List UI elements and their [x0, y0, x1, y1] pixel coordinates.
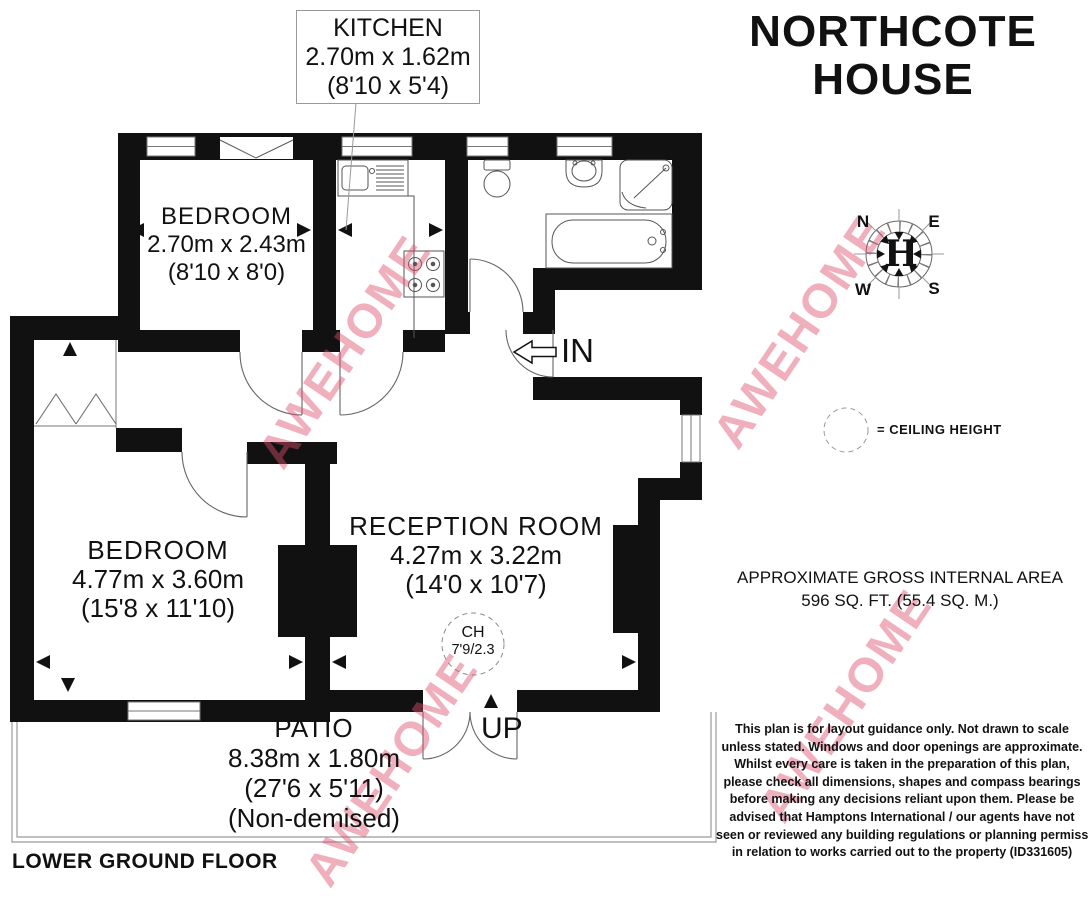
disclaimer-line: please check all dimensions, shapes and …: [716, 774, 1088, 792]
toilet: [484, 160, 510, 197]
property-title: NORTHCOTE HOUSE: [740, 8, 1046, 104]
bedroom-top-imperial: (8'10 x 8'0): [140, 259, 313, 287]
property-title-line2: HOUSE: [740, 56, 1046, 104]
compass-south-label: S: [924, 279, 944, 299]
gross-internal-area: APPROXIMATE GROSS INTERNAL AREA 596 SQ. …: [718, 566, 1082, 612]
walls: [10, 133, 702, 722]
stairs-up-label: UP: [481, 712, 523, 746]
gross-internal-area-value: 596 SQ. FT. (55.4 SQ. M.): [718, 589, 1082, 612]
bedroom-top-metric: 2.70m x 2.43m: [140, 231, 313, 259]
bedroom-main-name: BEDROOM: [38, 536, 278, 565]
compass-east-label: E: [924, 212, 944, 232]
property-title-line1: NORTHCOTE: [740, 8, 1046, 56]
patio-imperial: (27'6 x 5'11): [196, 773, 432, 803]
bedroom-main-label: BEDROOM 4.77m x 3.60m (15'8 x 11'10): [38, 536, 278, 623]
kitchen-sink: [338, 160, 408, 196]
kitchen-hob: [404, 251, 444, 297]
basin: [566, 160, 602, 187]
disclaimer-line: before making any decisions reliant upon…: [716, 791, 1088, 809]
ceiling-height-value: 7'9/2.3: [433, 642, 513, 659]
kitchen-imperial: (8'10 x 5'4): [297, 72, 479, 101]
compass-monogram: H: [884, 233, 918, 275]
patio-name: PATIO: [196, 713, 432, 743]
bathtub: [546, 214, 672, 268]
ceiling-height-legend-label: = CEILING HEIGHT: [877, 422, 1002, 437]
kitchen-label-box: KITCHEN 2.70m x 1.62m (8'10 x 5'4): [296, 10, 480, 104]
bedroom-main-metric: 4.77m x 3.60m: [38, 565, 278, 594]
compass-west-label: W: [853, 280, 873, 300]
entrance-label: IN: [561, 332, 594, 370]
ceiling-height-note: CH 7'9/2.3: [433, 624, 513, 659]
patio-label: PATIO 8.38m x 1.80m (27'6 x 5'11) (Non-d…: [196, 713, 432, 833]
disclaimer-line: Whilst every care is taken in the prepar…: [716, 756, 1088, 774]
bedroom-top-name: BEDROOM: [140, 203, 313, 231]
entry-arrow-icon: [514, 341, 556, 363]
legend-circle: [824, 408, 868, 452]
disclaimer-line: advised that Hamptons International / ou…: [716, 809, 1088, 827]
wardrobe: [220, 137, 293, 159]
floorplan-page: AWEHOME AWEHOME AWEHOME AWEHOME NORTHCOT…: [0, 0, 1088, 900]
kitchen-metric: 2.70m x 1.62m: [297, 43, 479, 72]
kitchen-name: KITCHEN: [297, 14, 479, 43]
floor-name: LOWER GROUND FLOOR: [12, 850, 278, 874]
disclaimer-line: unless stated. Windows and door openings…: [716, 739, 1088, 757]
disclaimer-line: in relation to works carried out to the …: [716, 844, 1088, 862]
patio-metric: 8.38m x 1.80m: [196, 743, 432, 773]
disclaimer-text: This plan is for layout guidance only. N…: [716, 721, 1088, 862]
compass-north-label: N: [853, 212, 873, 232]
patio-note: (Non-demised): [196, 803, 432, 833]
reception-label: RECEPTION ROOM 4.27m x 3.22m (14'0 x 10'…: [335, 512, 617, 599]
bedroom-top-label: BEDROOM 2.70m x 2.43m (8'10 x 8'0): [140, 203, 313, 287]
disclaimer-line: seen or reviewed any building regulation…: [716, 827, 1088, 845]
shower: [620, 160, 672, 210]
reception-name: RECEPTION ROOM: [335, 512, 617, 541]
reception-imperial: (14'0 x 10'7): [335, 570, 617, 599]
disclaimer-line: This plan is for layout guidance only. N…: [716, 721, 1088, 739]
ceiling-height-abbr: CH: [433, 624, 513, 642]
bedroom-main-imperial: (15'8 x 11'10): [38, 594, 278, 623]
gross-internal-area-heading: APPROXIMATE GROSS INTERNAL AREA: [718, 566, 1082, 589]
reception-metric: 4.27m x 3.22m: [335, 541, 617, 570]
